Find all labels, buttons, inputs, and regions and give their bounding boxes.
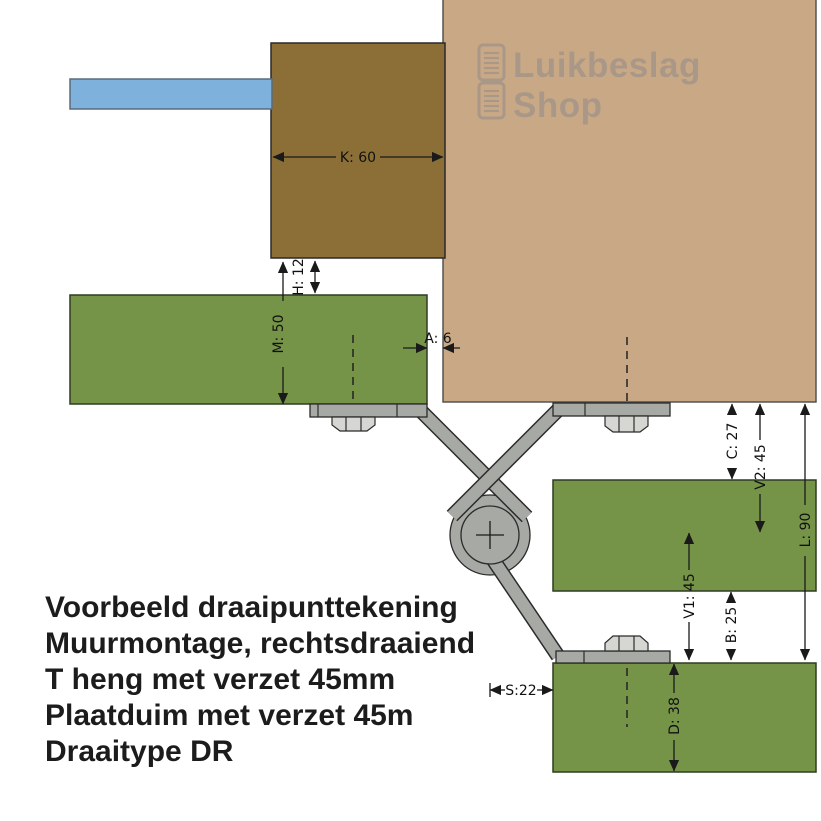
dimension-S: S:22 xyxy=(490,683,553,699)
dimension-L-label: L: 90 xyxy=(798,513,814,548)
logo-word-1: Luikbeslag xyxy=(513,46,701,85)
hinge-pivot-diagram: Luikbeslag Shop xyxy=(0,0,821,821)
caption-line-1: Voorbeeld draaipunttekening xyxy=(45,591,458,624)
bolt-right xyxy=(605,416,648,432)
dimension-B-label: B: 25 xyxy=(724,607,740,644)
dimension-K-label: K: 60 xyxy=(340,150,376,166)
bolt-left xyxy=(332,417,375,431)
caption-line-2: Muurmontage, rechtsdraaiend xyxy=(45,627,475,660)
dimension-M-label: M: 50 xyxy=(271,314,287,353)
wall-anchor-bar xyxy=(70,79,272,109)
caption-line-3: T heng met verzet 45mm xyxy=(45,663,395,696)
dimension-D-label: D: 38 xyxy=(667,697,683,735)
dimension-V2-label: V2: 45 xyxy=(753,444,769,489)
plate-left xyxy=(310,404,427,417)
shutter-board-left xyxy=(70,295,427,404)
dimension-C: C: 27 xyxy=(725,404,741,479)
lower-strap xyxy=(492,558,558,656)
drawing-canvas: Luikbeslag Shop xyxy=(0,0,821,821)
caption-line-4: Plaatduim met verzet 45m xyxy=(45,699,413,732)
dimension-A-label: A: 6 xyxy=(424,331,451,347)
plate-right xyxy=(553,403,670,416)
dimension-H-label: H: 12 xyxy=(291,258,307,296)
shutter-board-bottom xyxy=(553,663,816,772)
dimension-V1-label: V1: 45 xyxy=(682,573,698,618)
dimension-L: L: 90 xyxy=(798,404,814,660)
dimension-B: B: 25 xyxy=(724,592,740,660)
dimension-S-label: S:22 xyxy=(505,683,536,699)
logo-word-2: Shop xyxy=(513,86,602,125)
caption-block: Voorbeeld draaipunttekening Muurmontage,… xyxy=(45,591,475,768)
bolt-bottom xyxy=(605,636,648,651)
caption-line-5: Draaitype DR xyxy=(45,735,234,768)
plate-bottom xyxy=(556,651,670,663)
dimension-C-label: C: 27 xyxy=(725,423,741,460)
dimension-H: H: 12 xyxy=(291,258,315,296)
